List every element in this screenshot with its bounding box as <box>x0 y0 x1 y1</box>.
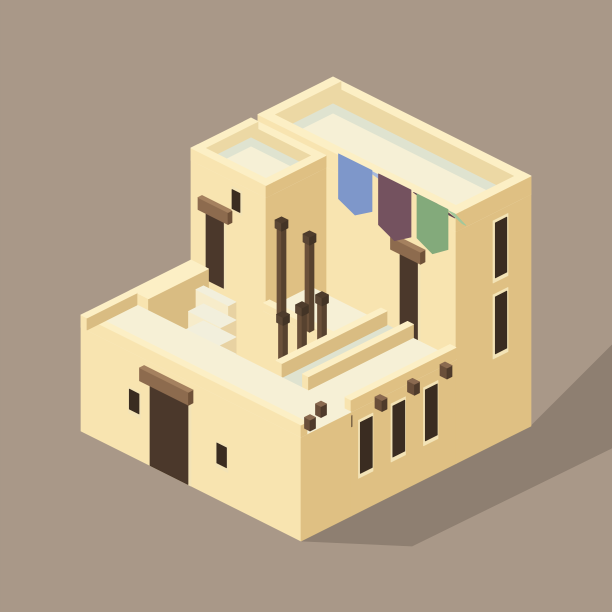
isometric-adobe-house-illustration <box>0 0 612 612</box>
right-window-2 <box>393 400 405 457</box>
terrace-post-1-right-face <box>282 228 287 318</box>
tower-window <box>232 190 240 213</box>
tall-window-upper <box>495 217 507 278</box>
right-window-1 <box>425 384 437 441</box>
terrace-post-1-left-face <box>277 228 282 318</box>
terrace-post-2-right-face <box>310 242 315 332</box>
tower-door-lintel-right-face <box>228 211 232 225</box>
right-window-3 <box>360 416 372 473</box>
tall-window-lower <box>495 291 507 354</box>
scene-canvas <box>0 0 612 612</box>
